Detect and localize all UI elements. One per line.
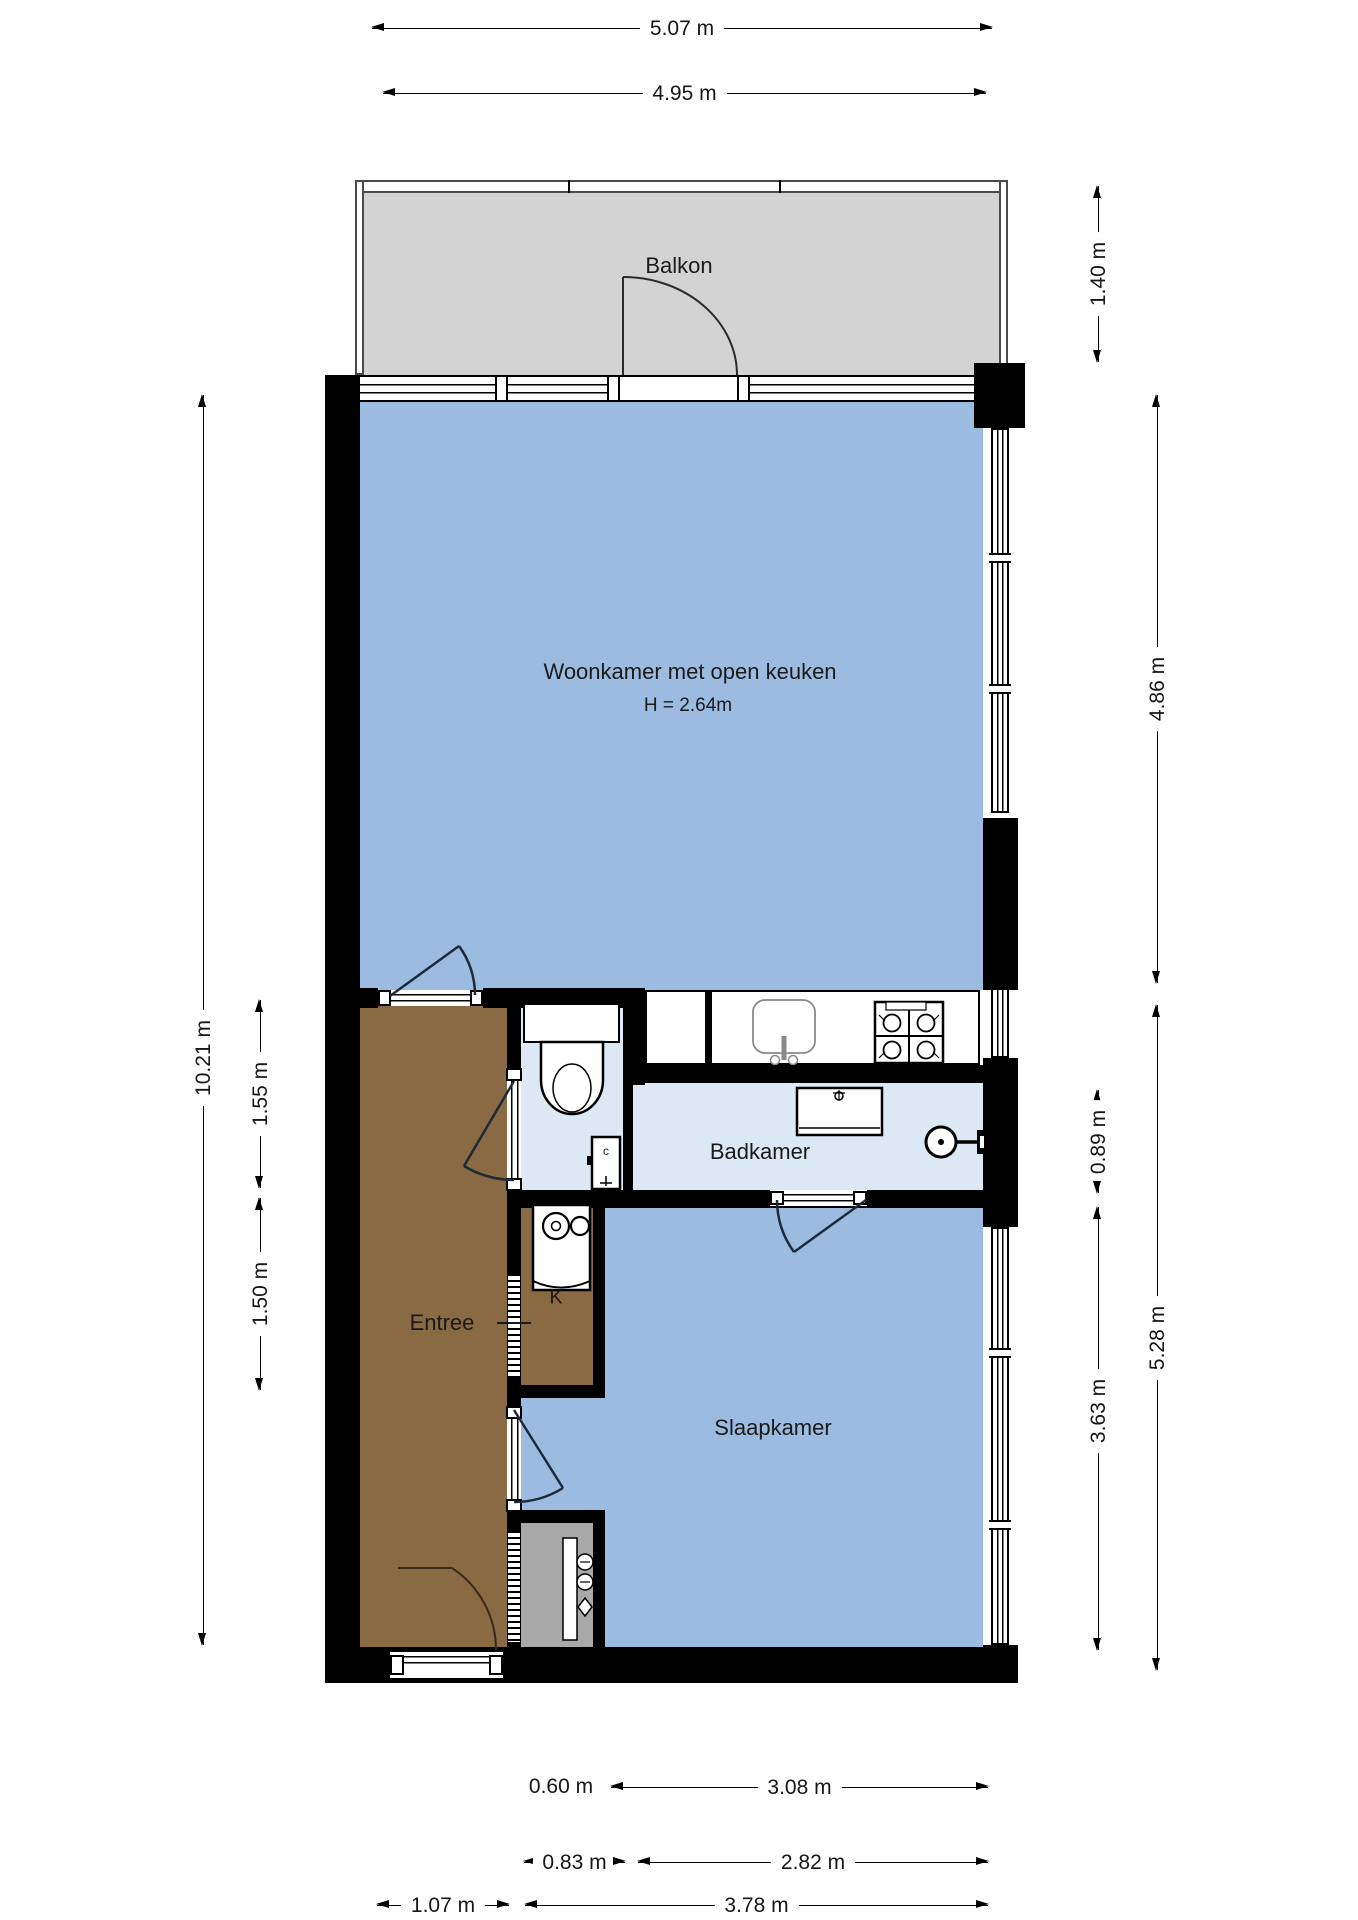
living-label: Woonkamer met open keuken [543, 659, 836, 685]
wall-right-kitchen [983, 818, 1018, 990]
wall-closet-right [593, 1208, 605, 1398]
bedroom-door-opening [507, 1406, 521, 1512]
wall-left-outer [325, 375, 360, 1683]
dim-bottom-closet-width: 0.60 m [529, 1775, 593, 1799]
window-mullion [989, 1348, 1011, 1358]
window-post [737, 375, 750, 402]
bedroom-label: Slaapkamer [714, 1415, 831, 1441]
kitchen-counter-divider [705, 990, 712, 1065]
dim-left-wc-depth: 1.55 m [260, 1000, 261, 1188]
dim-right-bedroom-depth: 3.63 m [1098, 1207, 1099, 1650]
room-wc-fill [521, 1003, 623, 1190]
dim-right-living-depth: 4.86 m [1157, 395, 1158, 983]
dim-right-balcony-depth: 1.40 m [1098, 186, 1099, 362]
door-hinge-block [770, 1191, 784, 1205]
dim-top-inner-width: 4.95 m [383, 93, 986, 94]
balcony-label: Balkon [645, 253, 712, 279]
meter-cabinet-door [507, 1530, 521, 1643]
balcony-wall-top [355, 180, 1008, 193]
meter-cabinet-fill [521, 1523, 593, 1647]
dim-left-closet-depth: 1.50 m [260, 1198, 261, 1390]
dim-right-bathroom-depth: 0.89 m [1098, 1090, 1099, 1193]
dim-right-lower-depth: 5.28 m [1157, 1005, 1158, 1670]
dim-bottom-hall-width: 1.07 m [377, 1905, 509, 1906]
wall-corner-topright [974, 363, 1025, 428]
window-post [495, 375, 508, 402]
wall-metercab-right [593, 1523, 605, 1647]
hall-label: Entree [410, 1310, 475, 1336]
window-mullion [989, 1520, 1011, 1530]
door-hinge-block [853, 1191, 867, 1205]
closet-door [507, 1273, 521, 1377]
door-hinge-block [489, 1655, 503, 1675]
wall-wc-kitchen [623, 988, 645, 1085]
wc-door-opening [507, 1078, 521, 1182]
balcony-wall-joint [568, 180, 570, 193]
room-bedroom-nook-fill [521, 1398, 605, 1510]
balcony-wall-right [999, 180, 1008, 375]
wall-closet-bottom [507, 1385, 605, 1398]
kitchen-counter [645, 990, 980, 1065]
balcony-door-opening [620, 375, 737, 402]
dim-bottom-wc-width: 0.83 m [524, 1862, 625, 1863]
window-mullion [989, 684, 1011, 694]
balcony-wall-joint [779, 180, 781, 193]
wall-right-bathroom [983, 1058, 1018, 1227]
door-hinge-block [506, 1178, 522, 1191]
window-mullion [989, 553, 1011, 563]
closet-label: K [549, 1287, 562, 1310]
dim-top-outer-width: 5.07 m [372, 28, 992, 29]
living-window-right [991, 428, 1009, 813]
dim-left-total-depth: 10.21 m [203, 395, 204, 1645]
living-hall-door-opening [378, 990, 483, 1006]
front-door-opening [390, 1652, 503, 1678]
dim-bottom-lower-width: 3.78 m [525, 1905, 988, 1906]
door-hinge-block [378, 990, 391, 1006]
floor-plan: Balkon Woonkamer met open keuken H = 2.6… [0, 0, 1358, 1920]
dim-bottom-bathroom-width: 2.82 m [638, 1862, 988, 1863]
wall-living-hall [360, 988, 378, 1008]
balcony-wall-left [355, 180, 364, 375]
bathroom-label: Badkamer [710, 1139, 810, 1165]
door-hinge-block [470, 990, 483, 1006]
wall-bathroom-bedroom [507, 1190, 983, 1208]
kitchen-window-right [991, 988, 1009, 1058]
wall-metercab-top [521, 1510, 605, 1523]
dim-bottom-bedroom-width: 3.08 m [611, 1787, 988, 1788]
living-height-note: H = 2.64m [644, 695, 732, 717]
balcony-floor [364, 193, 999, 375]
room-bathroom-fill [633, 1083, 983, 1190]
bedroom-window-right [991, 1227, 1009, 1645]
door-hinge-block [506, 1068, 522, 1081]
door-hinge-block [390, 1655, 404, 1675]
door-hinge-block [506, 1499, 522, 1512]
wall-kitchen-bathroom [645, 1065, 983, 1083]
door-hinge-block [506, 1406, 522, 1419]
window-post [607, 375, 620, 402]
wall-wc-bathroom [623, 1085, 633, 1190]
boiler-label: c [603, 1144, 609, 1158]
